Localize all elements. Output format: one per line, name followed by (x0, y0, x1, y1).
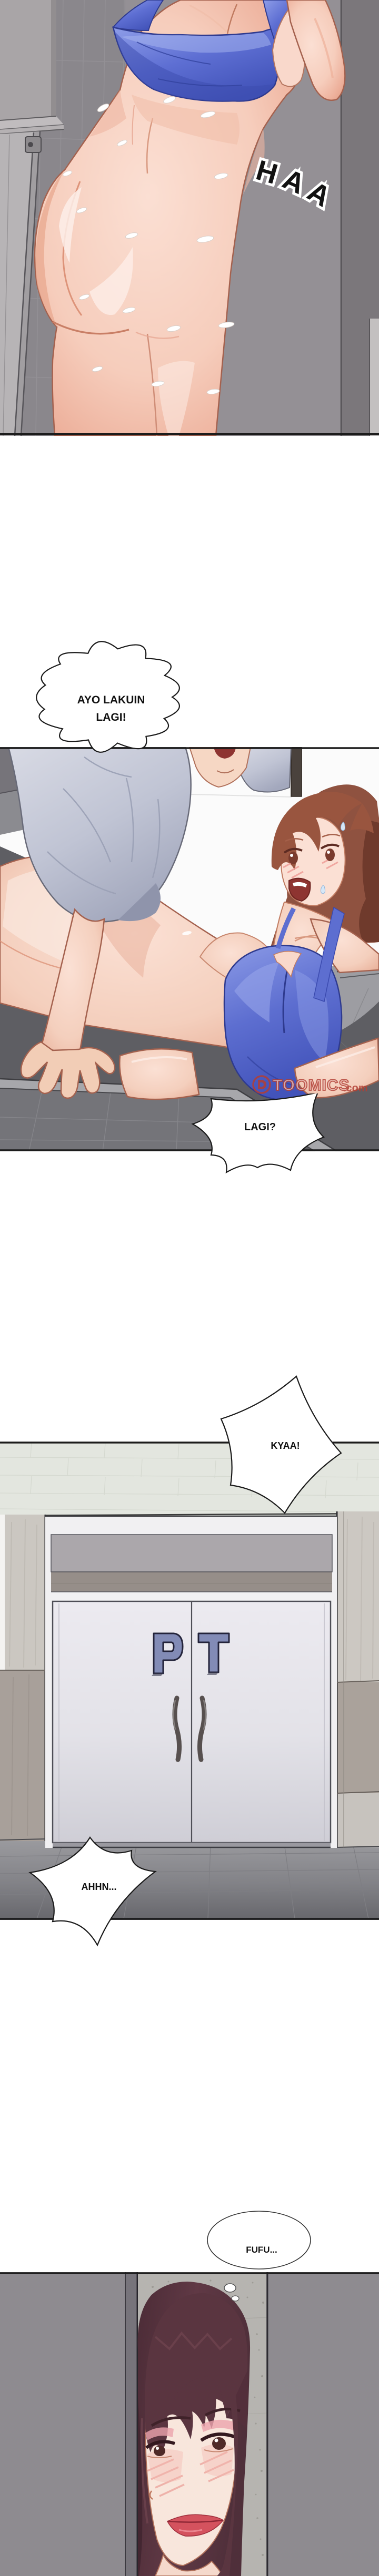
svg-text:LAGI?: LAGI? (244, 1121, 276, 1133)
svg-text:LAGI!: LAGI! (96, 711, 126, 723)
svg-text:KYAA!: KYAA! (271, 1440, 300, 1451)
svg-text:FUFU...: FUFU... (246, 2245, 277, 2255)
svg-text:TOOMICS: TOOMICS (273, 1077, 350, 1094)
svg-text:.com: .com (343, 1082, 368, 1094)
svg-text:AYO LAKUIN: AYO LAKUIN (77, 694, 145, 706)
svg-text:AHHN...: AHHN... (82, 1882, 117, 1892)
